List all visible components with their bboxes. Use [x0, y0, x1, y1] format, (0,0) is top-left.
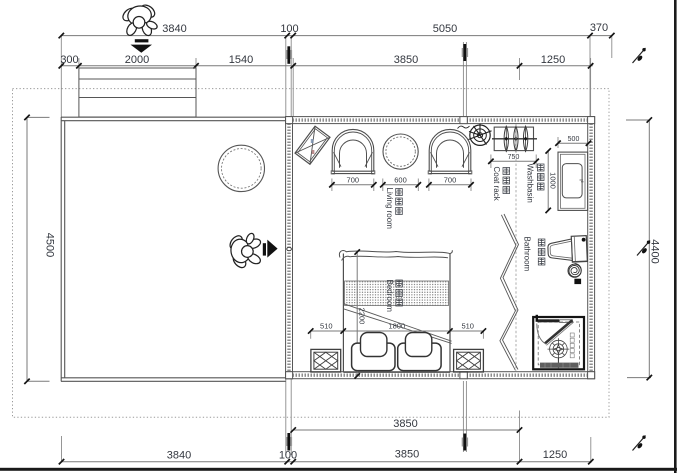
- svg-text:700: 700: [444, 176, 457, 185]
- svg-text:510: 510: [320, 322, 333, 331]
- svg-text:1250: 1250: [543, 449, 567, 461]
- svg-text:1250: 1250: [541, 54, 565, 66]
- svg-text:750: 750: [508, 154, 520, 161]
- svg-text:1800: 1800: [388, 322, 405, 331]
- svg-text:3840: 3840: [162, 23, 186, 35]
- svg-text:Washbasin: Washbasin: [525, 164, 534, 203]
- svg-text:Bedroom: Bedroom: [385, 280, 394, 313]
- svg-text:100: 100: [280, 23, 298, 35]
- svg-text:510: 510: [461, 322, 474, 331]
- svg-text:4500: 4500: [44, 233, 56, 257]
- svg-text:600: 600: [394, 176, 407, 185]
- svg-text:3840: 3840: [167, 450, 191, 462]
- svg-text:3850: 3850: [394, 54, 418, 66]
- svg-text:300: 300: [60, 54, 78, 66]
- svg-text:1540: 1540: [229, 54, 253, 66]
- svg-text:500: 500: [568, 136, 580, 143]
- svg-text:3850: 3850: [393, 418, 417, 430]
- svg-text:4400: 4400: [649, 239, 661, 263]
- svg-text:700: 700: [347, 176, 360, 185]
- svg-text:100: 100: [279, 450, 297, 462]
- svg-text:5050: 5050: [433, 23, 457, 35]
- svg-text:1000: 1000: [548, 172, 557, 189]
- svg-text:2000: 2000: [125, 54, 149, 66]
- svg-text:2200: 2200: [358, 308, 367, 325]
- svg-text:370: 370: [590, 22, 608, 34]
- svg-text:Bathroom: Bathroom: [522, 237, 531, 272]
- svg-text:Living room: Living room: [385, 188, 394, 230]
- svg-text:Coat rack: Coat rack: [492, 167, 501, 202]
- svg-text:3850: 3850: [395, 449, 419, 461]
